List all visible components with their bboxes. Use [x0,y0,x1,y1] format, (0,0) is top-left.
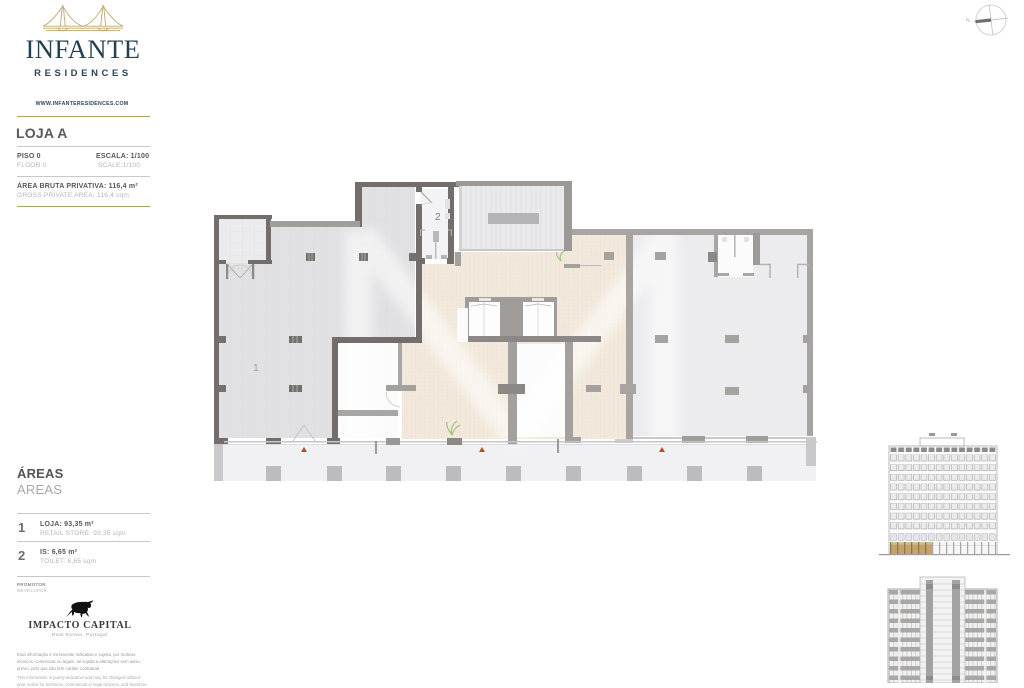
svg-text:2: 2 [435,212,441,223]
svg-text:1: 1 [253,362,259,374]
svg-text:N: N [966,18,970,24]
